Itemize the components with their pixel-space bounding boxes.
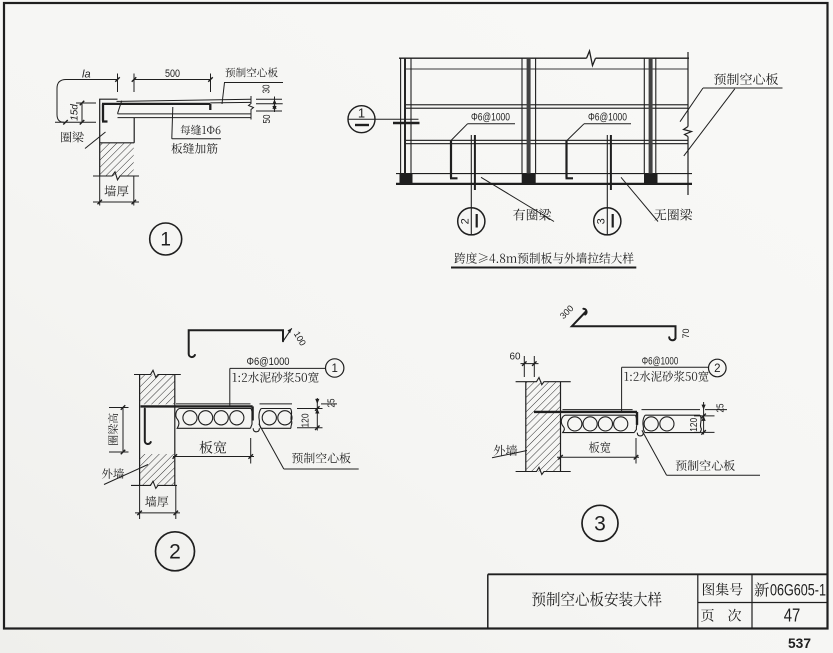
svg-text:537: 537 <box>788 635 811 651</box>
svg-text:la: la <box>82 69 91 81</box>
svg-text:70: 70 <box>681 329 691 339</box>
svg-text:Φ6@1000: Φ6@1000 <box>642 355 679 367</box>
svg-text:Φ6@1000: Φ6@1000 <box>247 356 290 368</box>
svg-text:30: 30 <box>261 84 272 93</box>
svg-text:50: 50 <box>262 114 273 123</box>
svg-text:3: 3 <box>595 218 607 224</box>
svg-text:2: 2 <box>714 363 720 375</box>
svg-text:15d: 15d <box>70 104 81 121</box>
svg-text:47: 47 <box>784 605 801 625</box>
svg-text:2: 2 <box>169 541 181 564</box>
svg-text:1: 1 <box>358 106 365 121</box>
svg-text:60: 60 <box>510 352 521 363</box>
svg-text:Φ6@1000: Φ6@1000 <box>471 111 510 123</box>
svg-text:3: 3 <box>594 513 606 536</box>
svg-text:25: 25 <box>716 403 727 412</box>
svg-text:500: 500 <box>165 68 180 80</box>
svg-text:1: 1 <box>331 363 337 375</box>
svg-text:120: 120 <box>689 417 700 431</box>
svg-text:06G605-1: 06G605-1 <box>770 581 826 599</box>
svg-text:Φ6@1000: Φ6@1000 <box>588 111 627 123</box>
svg-text:120: 120 <box>301 413 312 427</box>
svg-text:25: 25 <box>326 398 337 407</box>
svg-text:2: 2 <box>459 218 471 224</box>
svg-text:1: 1 <box>160 230 171 251</box>
